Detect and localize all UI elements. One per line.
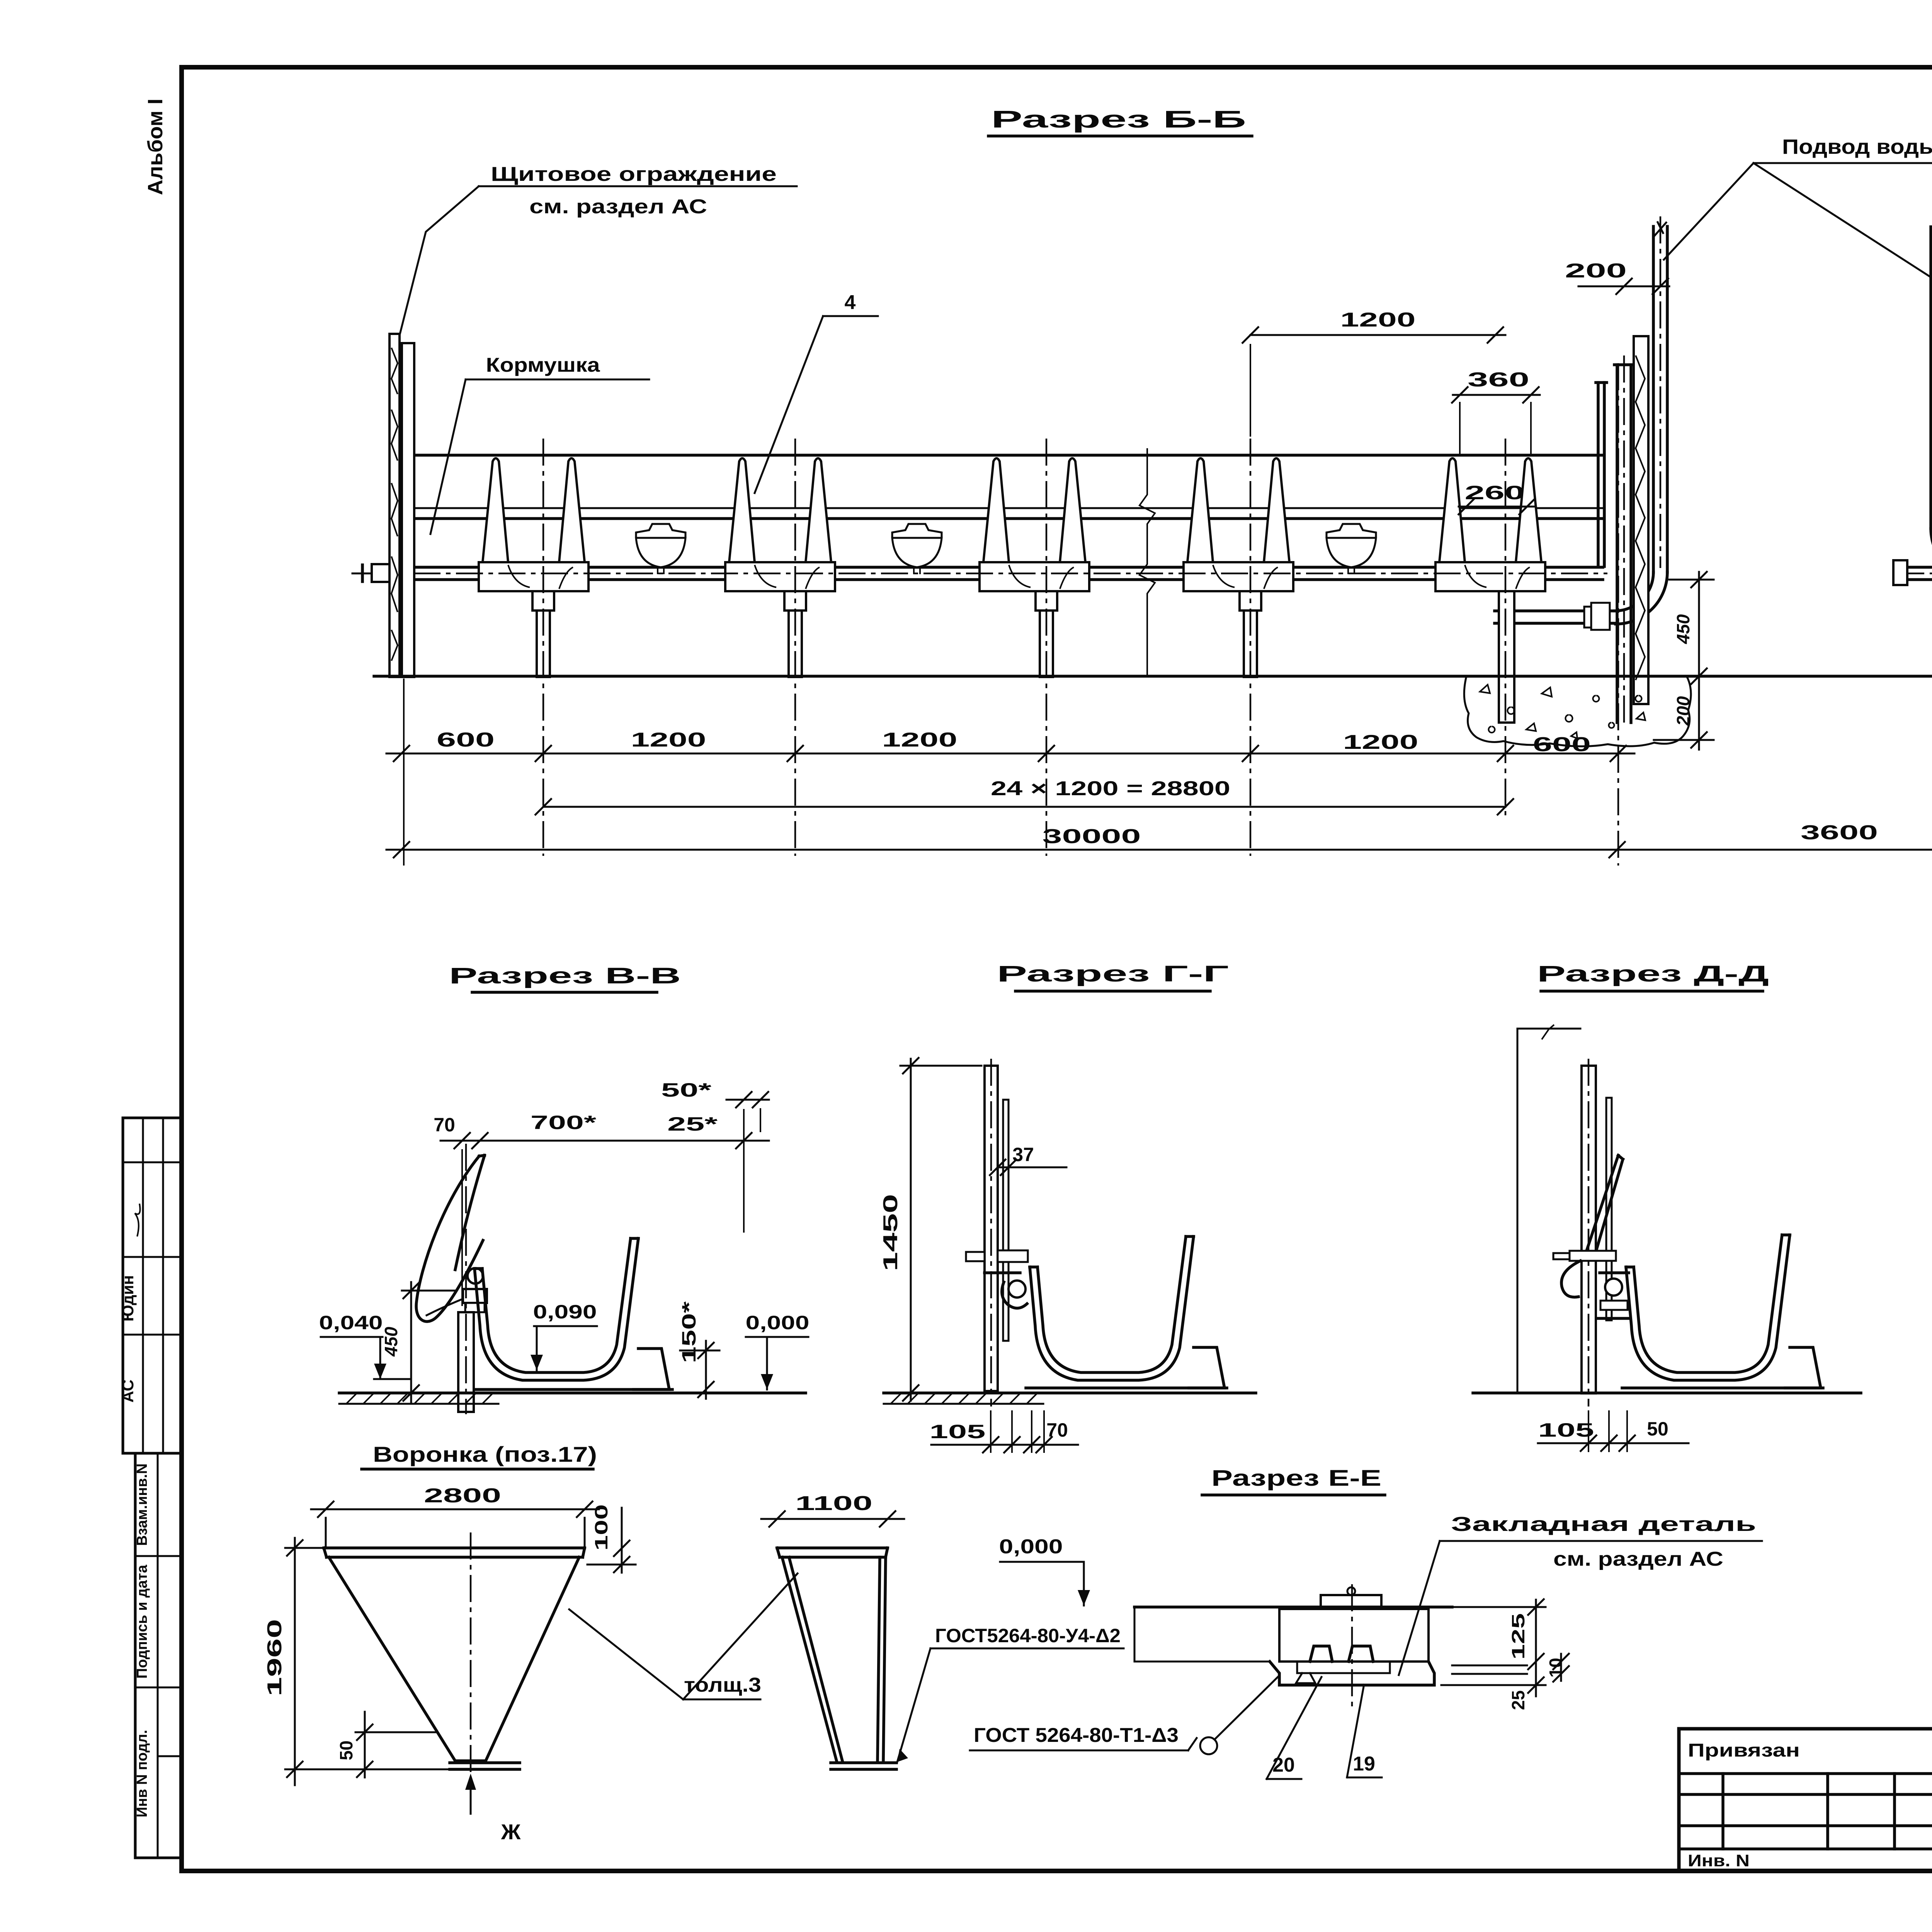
svg-text:Привязан: Привязан (1688, 1740, 1800, 1761)
svg-text:360: 360 (1468, 369, 1529, 391)
svg-text:200: 200 (1673, 696, 1693, 726)
svg-text:Воронка (поз.17): Воронка (поз.17) (373, 1442, 597, 1466)
svg-text:19: 19 (1353, 1753, 1375, 1775)
svg-text:Подпись и дата: Подпись и дата (134, 1565, 150, 1679)
svg-text:см. раздел АС: см. раздел АС (529, 196, 707, 218)
svg-text:125: 125 (1508, 1613, 1528, 1660)
svg-text:Закладная деталь: Закладная деталь (1451, 1513, 1756, 1536)
svg-text:1960: 1960 (264, 1619, 286, 1696)
svg-text:ГОСТ 5264-80-Т1-Δ3: ГОСТ 5264-80-Т1-Δ3 (974, 1724, 1179, 1747)
svg-text:2800: 2800 (424, 1485, 501, 1507)
svg-text:Юдин: Юдин (119, 1275, 137, 1321)
svg-text:1450: 1450 (879, 1194, 902, 1271)
svg-text:1200: 1200 (631, 729, 706, 751)
svg-text:70: 70 (1046, 1419, 1068, 1441)
svg-text:105: 105 (1538, 1419, 1594, 1441)
svg-text:Ж: Ж (501, 1820, 521, 1844)
svg-text:70: 70 (434, 1114, 455, 1136)
svg-text:25*: 25* (667, 1113, 718, 1135)
svg-text:Инв. N: Инв. N (1688, 1851, 1750, 1870)
svg-text:Разрез Б-Б: Разрез Б-Б (991, 106, 1246, 133)
svg-text:700*: 700* (531, 1112, 597, 1133)
svg-text:4: 4 (845, 291, 856, 314)
svg-text:600: 600 (1533, 733, 1591, 756)
svg-text:24 × 1200 = 28800: 24 × 1200 = 28800 (991, 777, 1230, 800)
svg-text:АС: АС (119, 1379, 137, 1403)
svg-text:50: 50 (1647, 1418, 1668, 1440)
svg-text:Кормушка: Кормушка (486, 354, 600, 376)
svg-text:25: 25 (1508, 1690, 1528, 1710)
svg-text:600: 600 (437, 729, 495, 751)
svg-text:260: 260 (1465, 482, 1525, 503)
svg-text:1200: 1200 (882, 729, 957, 751)
svg-text:450: 450 (381, 1327, 401, 1357)
svg-text:Разрез Е-Е: Разрез Е-Е (1211, 1466, 1381, 1491)
svg-text:0,040: 0,040 (319, 1312, 383, 1333)
svg-text:1200: 1200 (1343, 731, 1418, 753)
svg-text:Разрез В-В: Разрез В-В (449, 963, 681, 988)
svg-text:450: 450 (1673, 614, 1693, 644)
svg-text:200: 200 (1565, 260, 1627, 282)
svg-text:1100: 1100 (795, 1492, 872, 1515)
svg-text:ГОСТ5264-80-У4-Δ2: ГОСТ5264-80-У4-Δ2 (935, 1625, 1121, 1646)
svg-text:Альбом I: Альбом I (144, 99, 167, 195)
svg-text:30000: 30000 (1043, 825, 1141, 848)
svg-text:Подвод воды см. раздел ВК: Подвод воды см. раздел ВК (1782, 135, 1932, 158)
svg-text:0,090: 0,090 (533, 1301, 597, 1323)
svg-text:1200: 1200 (1340, 309, 1416, 331)
svg-text:50*: 50* (661, 1079, 712, 1101)
svg-text:20: 20 (1272, 1754, 1295, 1776)
svg-text:Разрез Д-Д: Разрез Д-Д (1537, 961, 1769, 986)
svg-text:105: 105 (930, 1421, 986, 1442)
svg-text:100: 100 (591, 1504, 611, 1551)
svg-text:0,000: 0,000 (999, 1536, 1063, 1558)
svg-text:Взам.инв.N: Взам.инв.N (134, 1463, 150, 1546)
svg-text:3600: 3600 (1801, 821, 1878, 844)
svg-text:Щитовое ограждение: Щитовое ограждение (491, 163, 777, 185)
svg-text:150*: 150* (678, 1301, 700, 1363)
svg-text:0,000: 0,000 (746, 1312, 810, 1333)
svg-text:см. раздел АС: см. раздел АС (1553, 1548, 1723, 1570)
svg-text:37: 37 (1012, 1144, 1034, 1165)
svg-text:50: 50 (336, 1740, 356, 1760)
svg-text:Разрез Г-Г: Разрез Г-Г (997, 961, 1229, 986)
svg-text:Инв N подл.: Инв N подл. (134, 1730, 150, 1818)
